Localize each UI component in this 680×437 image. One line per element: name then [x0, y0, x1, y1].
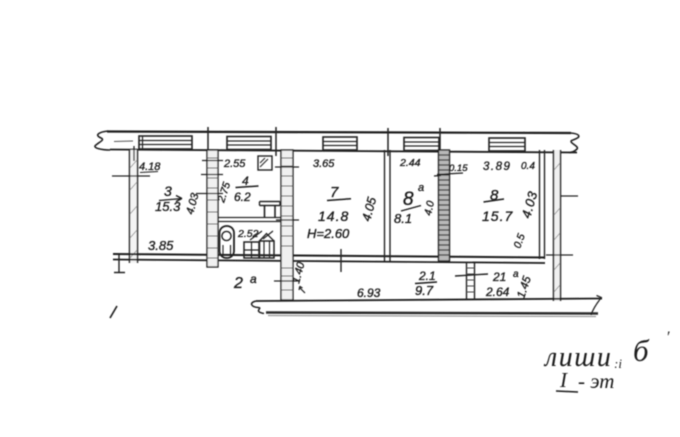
svg-text:a: a — [513, 269, 519, 280]
svg-text:4.0: 4.0 — [422, 200, 437, 217]
svg-text:I: I — [559, 368, 568, 392]
svg-text:H=2.60: H=2.60 — [307, 226, 350, 241]
svg-text:0.4: 0.4 — [521, 161, 535, 172]
svg-text:2.55: 2.55 — [223, 158, 246, 170]
svg-text:2.52: 2.52 — [237, 228, 259, 240]
svg-text:2.64: 2.64 — [485, 285, 510, 299]
svg-text:4: 4 — [242, 174, 249, 188]
svg-text:6.93: 6.93 — [357, 286, 381, 300]
svg-text:a: a — [250, 272, 257, 286]
svg-text:4.05: 4.05 — [359, 196, 379, 223]
svg-text:8: 8 — [403, 189, 414, 210]
svg-text::і: :і — [614, 356, 622, 371]
svg-text:4.03: 4.03 — [518, 189, 540, 220]
svg-text:21: 21 — [492, 270, 506, 284]
svg-text:3.85: 3.85 — [148, 238, 174, 253]
svg-text:3.89: 3.89 — [483, 161, 511, 173]
svg-text:14.8: 14.8 — [318, 208, 349, 224]
svg-text:3: 3 — [164, 183, 172, 199]
svg-text:- эт: - эт — [578, 369, 614, 393]
svg-text:9.7: 9.7 — [415, 283, 434, 298]
svg-text:0.5: 0.5 — [512, 232, 528, 250]
svg-text:15.7: 15.7 — [482, 208, 513, 224]
svg-text:8.1: 8.1 — [394, 211, 412, 226]
svg-text:0.15: 0.15 — [449, 163, 468, 174]
svg-text:4.03: 4.03 — [184, 191, 201, 216]
svg-text:2.1: 2.1 — [418, 269, 436, 283]
svg-text:2: 2 — [233, 275, 243, 292]
svg-text:a: a — [418, 182, 424, 194]
svg-text:6.2: 6.2 — [234, 190, 251, 204]
svg-text:′: ′ — [666, 329, 670, 346]
svg-text:2.44: 2.44 — [399, 157, 421, 169]
svg-text:3.65: 3.65 — [313, 158, 335, 170]
svg-text:б: б — [633, 333, 650, 368]
svg-text:15.3: 15.3 — [155, 199, 181, 214]
svg-text:7: 7 — [330, 184, 339, 201]
